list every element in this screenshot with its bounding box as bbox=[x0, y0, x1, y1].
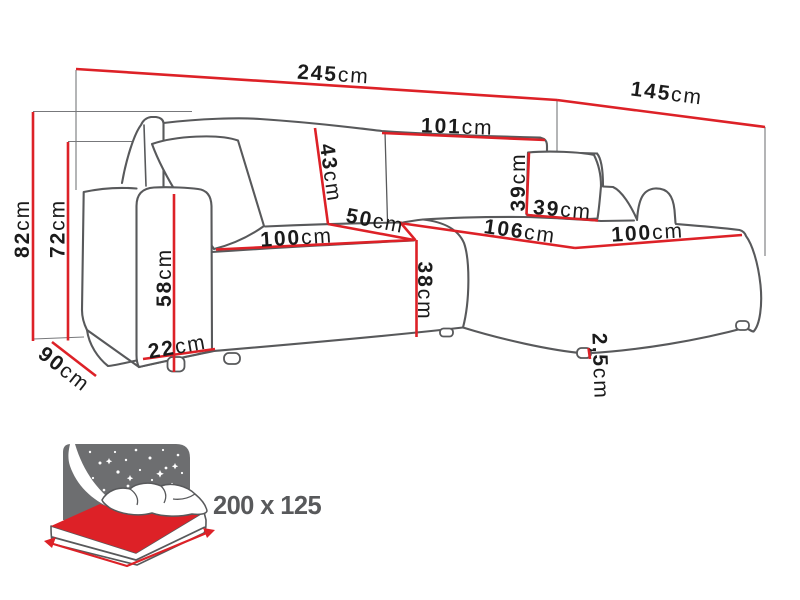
svg-text:58cm: 58cm bbox=[153, 248, 176, 307]
svg-text:2,5cm: 2,5cm bbox=[587, 333, 612, 400]
svg-text:100cm: 100cm bbox=[611, 219, 685, 246]
svg-text:245cm: 245cm bbox=[296, 61, 370, 89]
svg-text:72cm: 72cm bbox=[47, 199, 70, 258]
svg-text:39cm: 39cm bbox=[507, 153, 530, 212]
svg-text:200 x 125: 200 x 125 bbox=[213, 492, 321, 520]
svg-text:101cm: 101cm bbox=[421, 114, 494, 140]
svg-text:100cm: 100cm bbox=[260, 224, 334, 251]
svg-text:38cm: 38cm bbox=[413, 262, 436, 321]
svg-text:82cm: 82cm bbox=[11, 199, 34, 258]
